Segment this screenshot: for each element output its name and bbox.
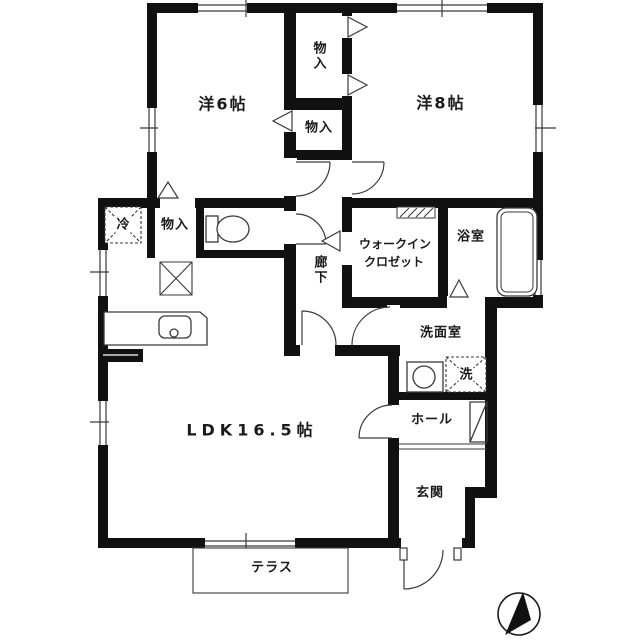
room-label-bathroom: 浴室 [457,230,485,247]
door-washroom [352,307,390,345]
fold-closet-mid [273,111,292,131]
pillar-box [160,262,192,295]
wic-shelf [397,207,435,218]
washbasin-bowl [413,366,435,388]
label-closet-mid: 物入 [305,121,333,138]
fold-closet-top-2 [348,75,367,95]
room-label-washroom: 洗面室 [420,326,462,343]
label-washer: 洗 [458,368,473,385]
room-label-wic-line1: ウォークイン [359,237,431,253]
label-closet-top: 物入 [309,41,326,71]
room-label-hall: ホール [411,413,453,430]
floorplan: 洋6帖 洋8帖 物入 物入 物入 冷 廊下 ウォークイン クロゼット 浴室 洗面… [0,0,640,640]
room-label-corridor: 廊下 [310,255,327,285]
bathtub-inner [501,212,533,292]
door-toilet [296,214,326,244]
fold-closet-kitchen [158,182,178,198]
fold-closet-top-1 [348,17,367,37]
room-label-ldk: LDK16.5帖 [186,421,317,442]
room-label-wic-line2: クロゼット [364,255,424,271]
door-ldk-corridor [302,311,336,345]
room-label-entrance: 玄関 [416,486,444,503]
entrance-step-line [399,444,487,449]
room-label-western8: 洋8帖 [416,94,465,115]
room-label-western6: 洋6帖 [198,95,247,116]
compass-north-icon [498,592,540,635]
label-refrigerator: 冷 [115,218,130,235]
room-label-terrace: テラス [251,561,293,578]
fold-bath [450,280,468,297]
entrance-door-jamb [400,548,407,560]
entrance-door-jamb [454,548,461,560]
toilet-tank-icon [206,216,218,242]
sink-drain [170,329,178,337]
door-yo8 [352,162,384,194]
toilet-bowl-icon [217,216,249,242]
door-entrance [404,550,443,589]
shoe-cabinet [470,402,487,442]
floorplan-drawing [0,0,640,640]
door-yo6 [296,162,330,196]
label-closet-kitchen: 物入 [161,218,189,235]
